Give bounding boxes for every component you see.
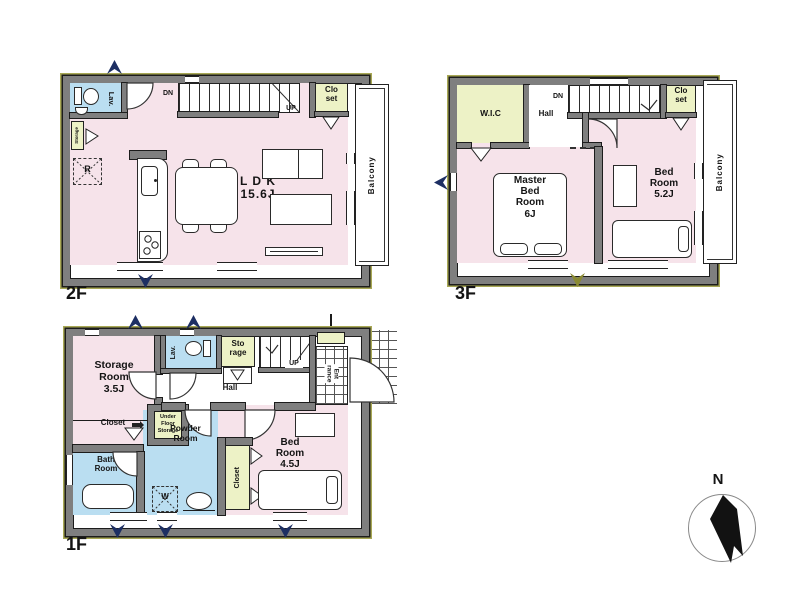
door-fold-mark — [471, 148, 491, 162]
wall — [137, 452, 144, 515]
powder-room-label: Powder Room — [158, 424, 213, 443]
tv-board — [265, 247, 323, 256]
pillow — [678, 226, 689, 252]
door-fold-mark — [125, 428, 143, 441]
wall — [457, 143, 471, 148]
window — [185, 76, 199, 83]
door-fold-mark — [231, 370, 244, 381]
window — [590, 78, 628, 85]
entrance-label: Ent rance — [315, 348, 348, 400]
toilet-bowl-icon — [185, 341, 202, 356]
desk — [613, 165, 637, 207]
master-bedroom-label: Master Bed Room 6J — [500, 175, 560, 220]
floor-1f-plan: Storage Room 3.5J Closet Under Floor Sto… — [66, 329, 369, 536]
low-table — [270, 194, 332, 225]
direction-arrow-down — [570, 273, 585, 288]
window — [608, 260, 668, 269]
floor-3f-label: 3F — [455, 283, 476, 303]
up-label-2f: UP — [282, 105, 300, 113]
pillow — [500, 243, 528, 255]
pillow — [326, 476, 338, 504]
floor-1f-label: 1F — [66, 534, 87, 554]
desk — [295, 413, 335, 437]
lav-label-2f: Lav. — [102, 85, 120, 112]
stove — [139, 231, 161, 259]
up-label-1f: UP — [285, 360, 303, 368]
wall — [161, 336, 165, 371]
fridge-label: R — [73, 164, 102, 174]
balcony-3f-label: Balcony — [704, 81, 736, 263]
direction-arrow-up — [128, 315, 143, 330]
direction-arrow-down — [158, 524, 173, 539]
compass-needle-icon — [701, 493, 749, 565]
window — [346, 153, 355, 164]
door-arc — [127, 83, 153, 109]
window — [217, 262, 257, 271]
wall — [218, 438, 225, 515]
faucet-dot — [154, 179, 157, 182]
front-door-arc — [350, 358, 394, 402]
compass-circle — [688, 494, 756, 562]
closet-1f-label: Closet — [95, 419, 131, 428]
wic-label: W.I.C — [457, 109, 524, 119]
sink-counter-line — [183, 510, 215, 511]
direction-arrow-down — [110, 524, 125, 539]
window — [450, 173, 457, 191]
window — [694, 211, 703, 245]
floor-2f-label: 2F — [66, 283, 87, 303]
wall — [178, 112, 278, 117]
wall — [275, 403, 315, 410]
window — [346, 191, 355, 225]
window — [110, 512, 147, 521]
chair — [210, 224, 227, 233]
door-arc — [129, 372, 156, 399]
bathtub — [82, 484, 134, 509]
door-arc — [245, 410, 275, 440]
wall — [259, 368, 313, 372]
toilet-bowl-icon — [83, 88, 99, 105]
wall — [595, 147, 602, 263]
wall — [73, 445, 143, 452]
compass-north-label: N — [703, 472, 733, 489]
door-arc — [170, 373, 196, 399]
wall — [315, 112, 348, 116]
shoe-cabinet — [317, 332, 345, 344]
wall — [211, 403, 245, 410]
washer-label: W — [152, 493, 178, 502]
floor-3f-plan: W.I.C Hall DN Clo set Master Bed Room 6J… — [450, 78, 717, 284]
door-fold-mark — [323, 117, 339, 130]
toilet-tank-icon — [203, 340, 211, 357]
floorplan-page: { "document": {"type": "house-floor-plan… — [0, 0, 800, 600]
direction-arrow-up — [186, 315, 201, 330]
door-fold-mark — [86, 129, 100, 144]
window — [85, 329, 99, 336]
down-label-3f: DN — [549, 93, 567, 101]
door-arc — [588, 119, 617, 148]
closet-3f-label: Clo set — [666, 87, 696, 105]
closet-side-label: Closet — [225, 445, 250, 510]
hall-1f-label: Hall — [216, 384, 244, 393]
hall-3f-label: Hall — [533, 110, 559, 119]
wall — [491, 143, 529, 148]
balcony-2f: Balcony — [355, 84, 389, 266]
lav-1f-label: Lav. — [166, 338, 182, 368]
down-label-2f: DN — [159, 90, 177, 98]
powder-sink — [186, 492, 212, 510]
direction-arrow-left — [434, 175, 449, 190]
window — [117, 262, 163, 271]
toilet-tank-icon — [74, 87, 82, 105]
window — [273, 512, 307, 521]
balcony-3f: Balcony — [703, 80, 737, 264]
window — [694, 163, 703, 179]
bedroom-1f-label: Bed Room 4.5J — [260, 437, 320, 471]
window — [157, 512, 177, 521]
window — [66, 455, 73, 485]
door-arc — [113, 452, 137, 476]
door-fold-mark — [673, 118, 689, 131]
stairs-3f — [568, 85, 664, 114]
storage-strip-label: Storage — [71, 121, 84, 150]
storage-1f-label: Sto rage — [221, 340, 255, 358]
sofa — [262, 149, 323, 179]
window — [528, 260, 568, 269]
balcony-2f-label: Balcony — [356, 85, 388, 265]
chair — [182, 224, 199, 233]
bedroom-3f-label: Bed Room 5.2J — [635, 167, 693, 201]
half-wall-dashed — [570, 147, 596, 149]
window — [180, 329, 194, 336]
wall — [162, 403, 185, 410]
pillow — [534, 243, 562, 255]
direction-arrow-down — [278, 524, 293, 539]
wall — [666, 113, 696, 117]
direction-arrow-down — [138, 274, 153, 289]
floor-2f-plan: Lav. Storage R DN UP Clo set L D K 15.6J — [63, 76, 369, 286]
closet-2f-label: Clo set — [315, 86, 348, 104]
direction-arrow-up — [107, 60, 122, 75]
